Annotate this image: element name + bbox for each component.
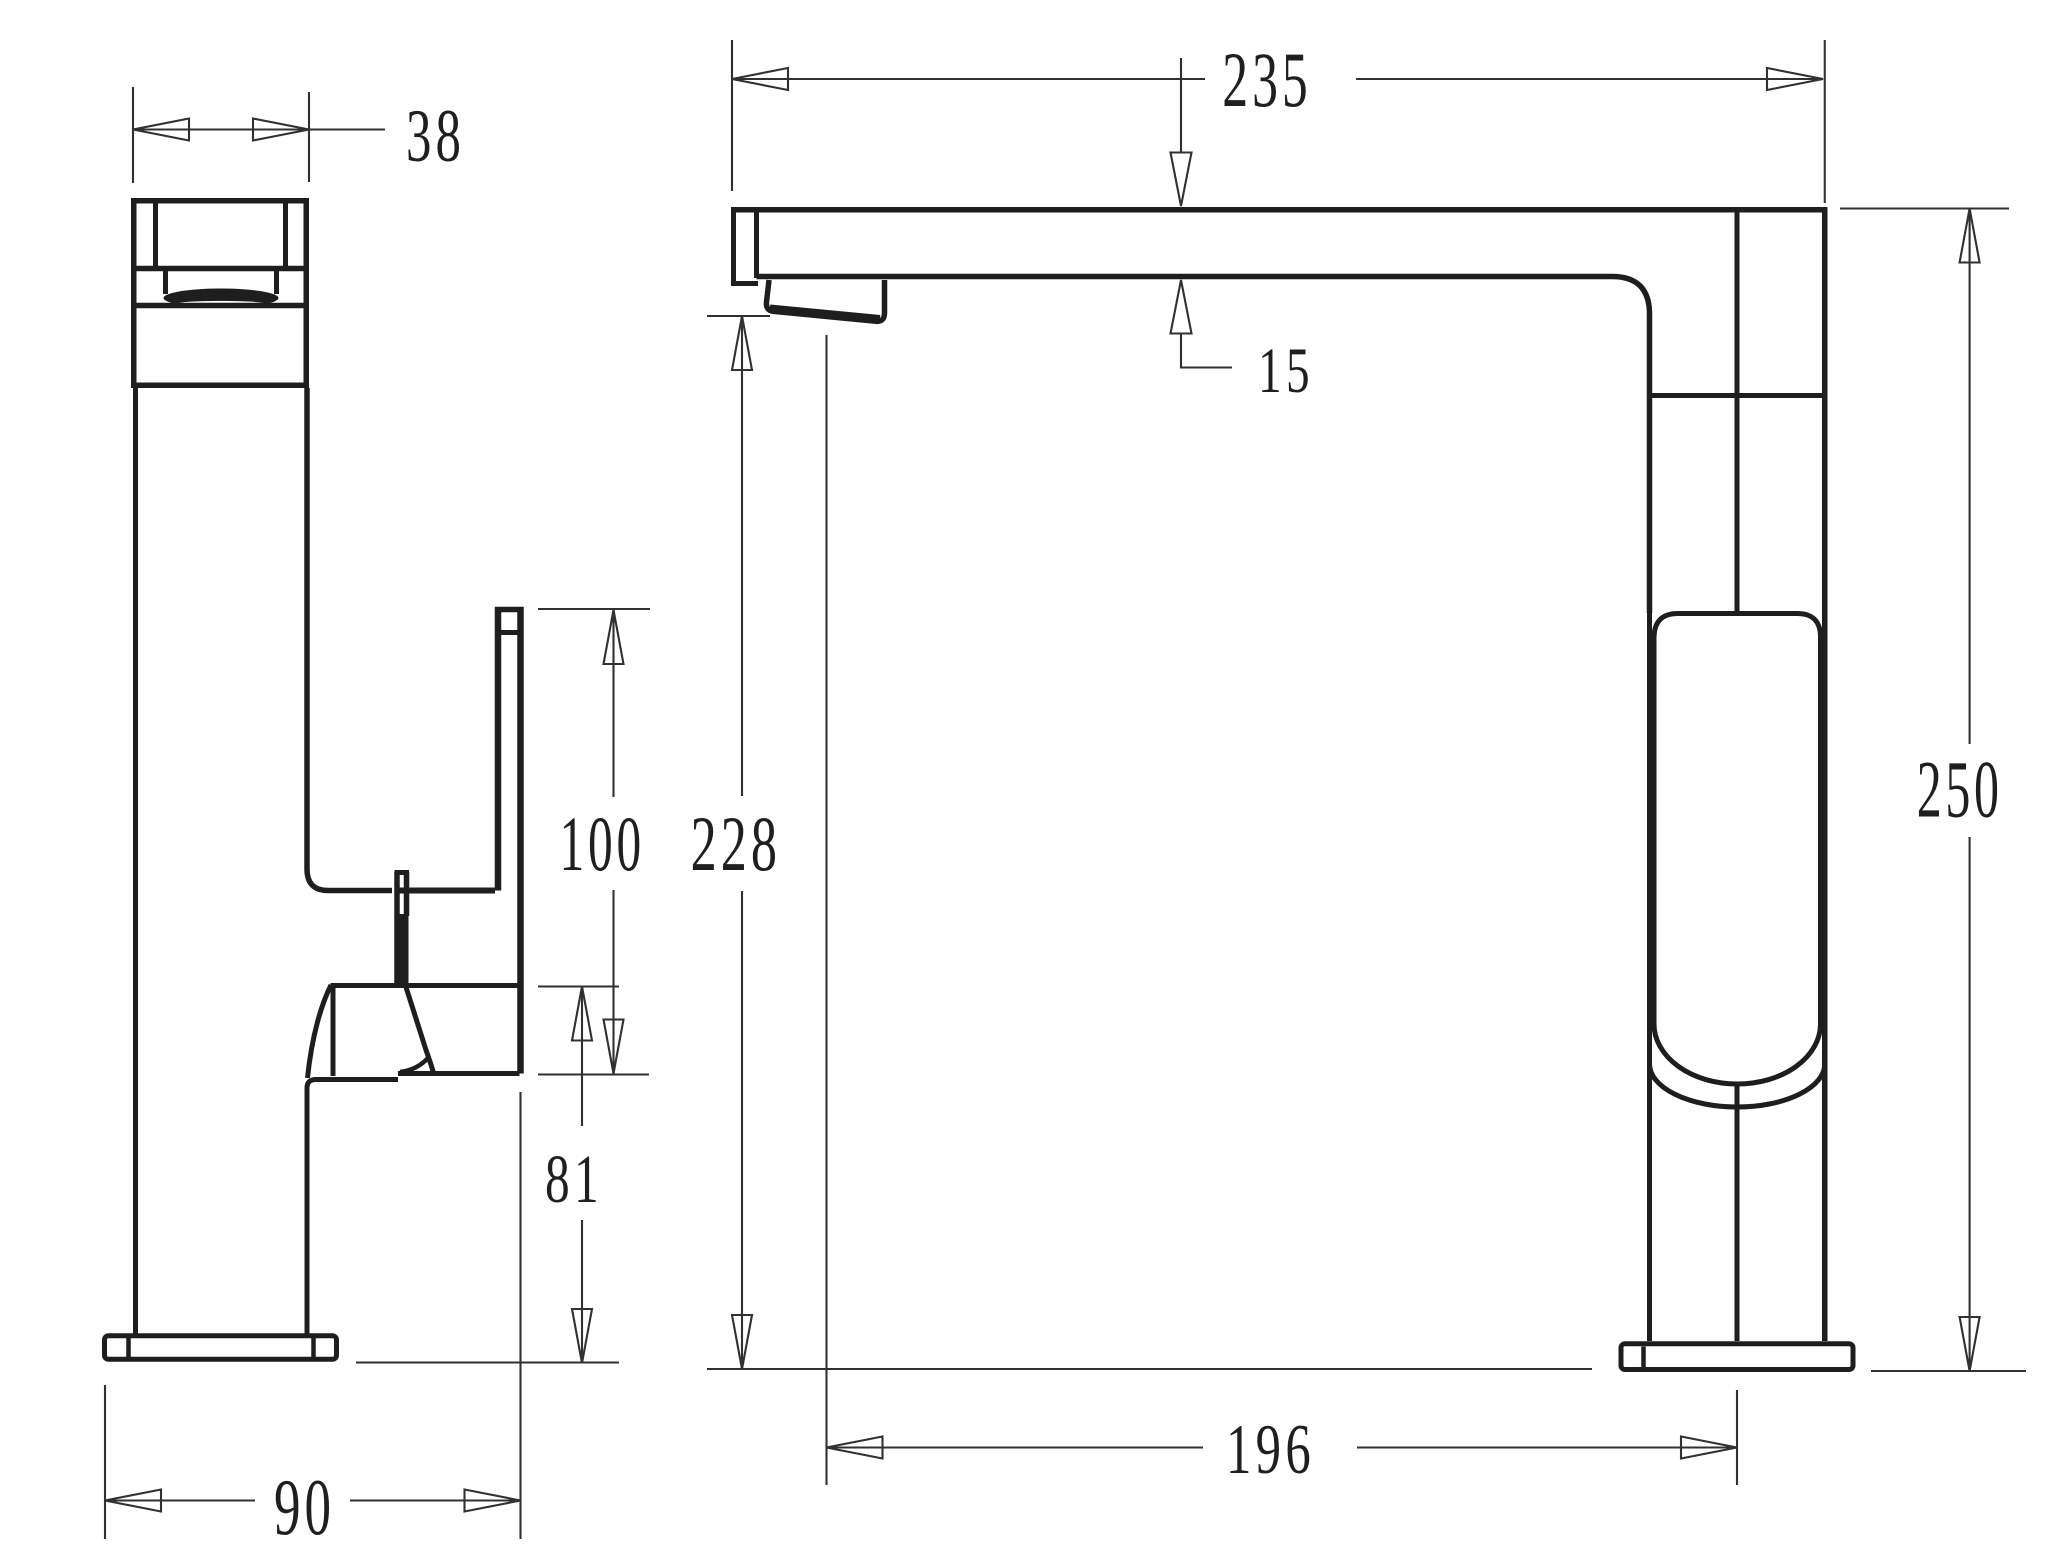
svg-text:81: 81 xyxy=(545,1141,603,1217)
svg-text:38: 38 xyxy=(406,95,465,178)
svg-text:100: 100 xyxy=(559,800,645,887)
svg-text:15: 15 xyxy=(1258,335,1314,407)
svg-text:228: 228 xyxy=(691,800,781,887)
svg-text:250: 250 xyxy=(1917,743,2003,834)
svg-text:196: 196 xyxy=(1226,1411,1315,1489)
svg-text:235: 235 xyxy=(1222,36,1312,123)
svg-text:90: 90 xyxy=(274,1464,335,1552)
